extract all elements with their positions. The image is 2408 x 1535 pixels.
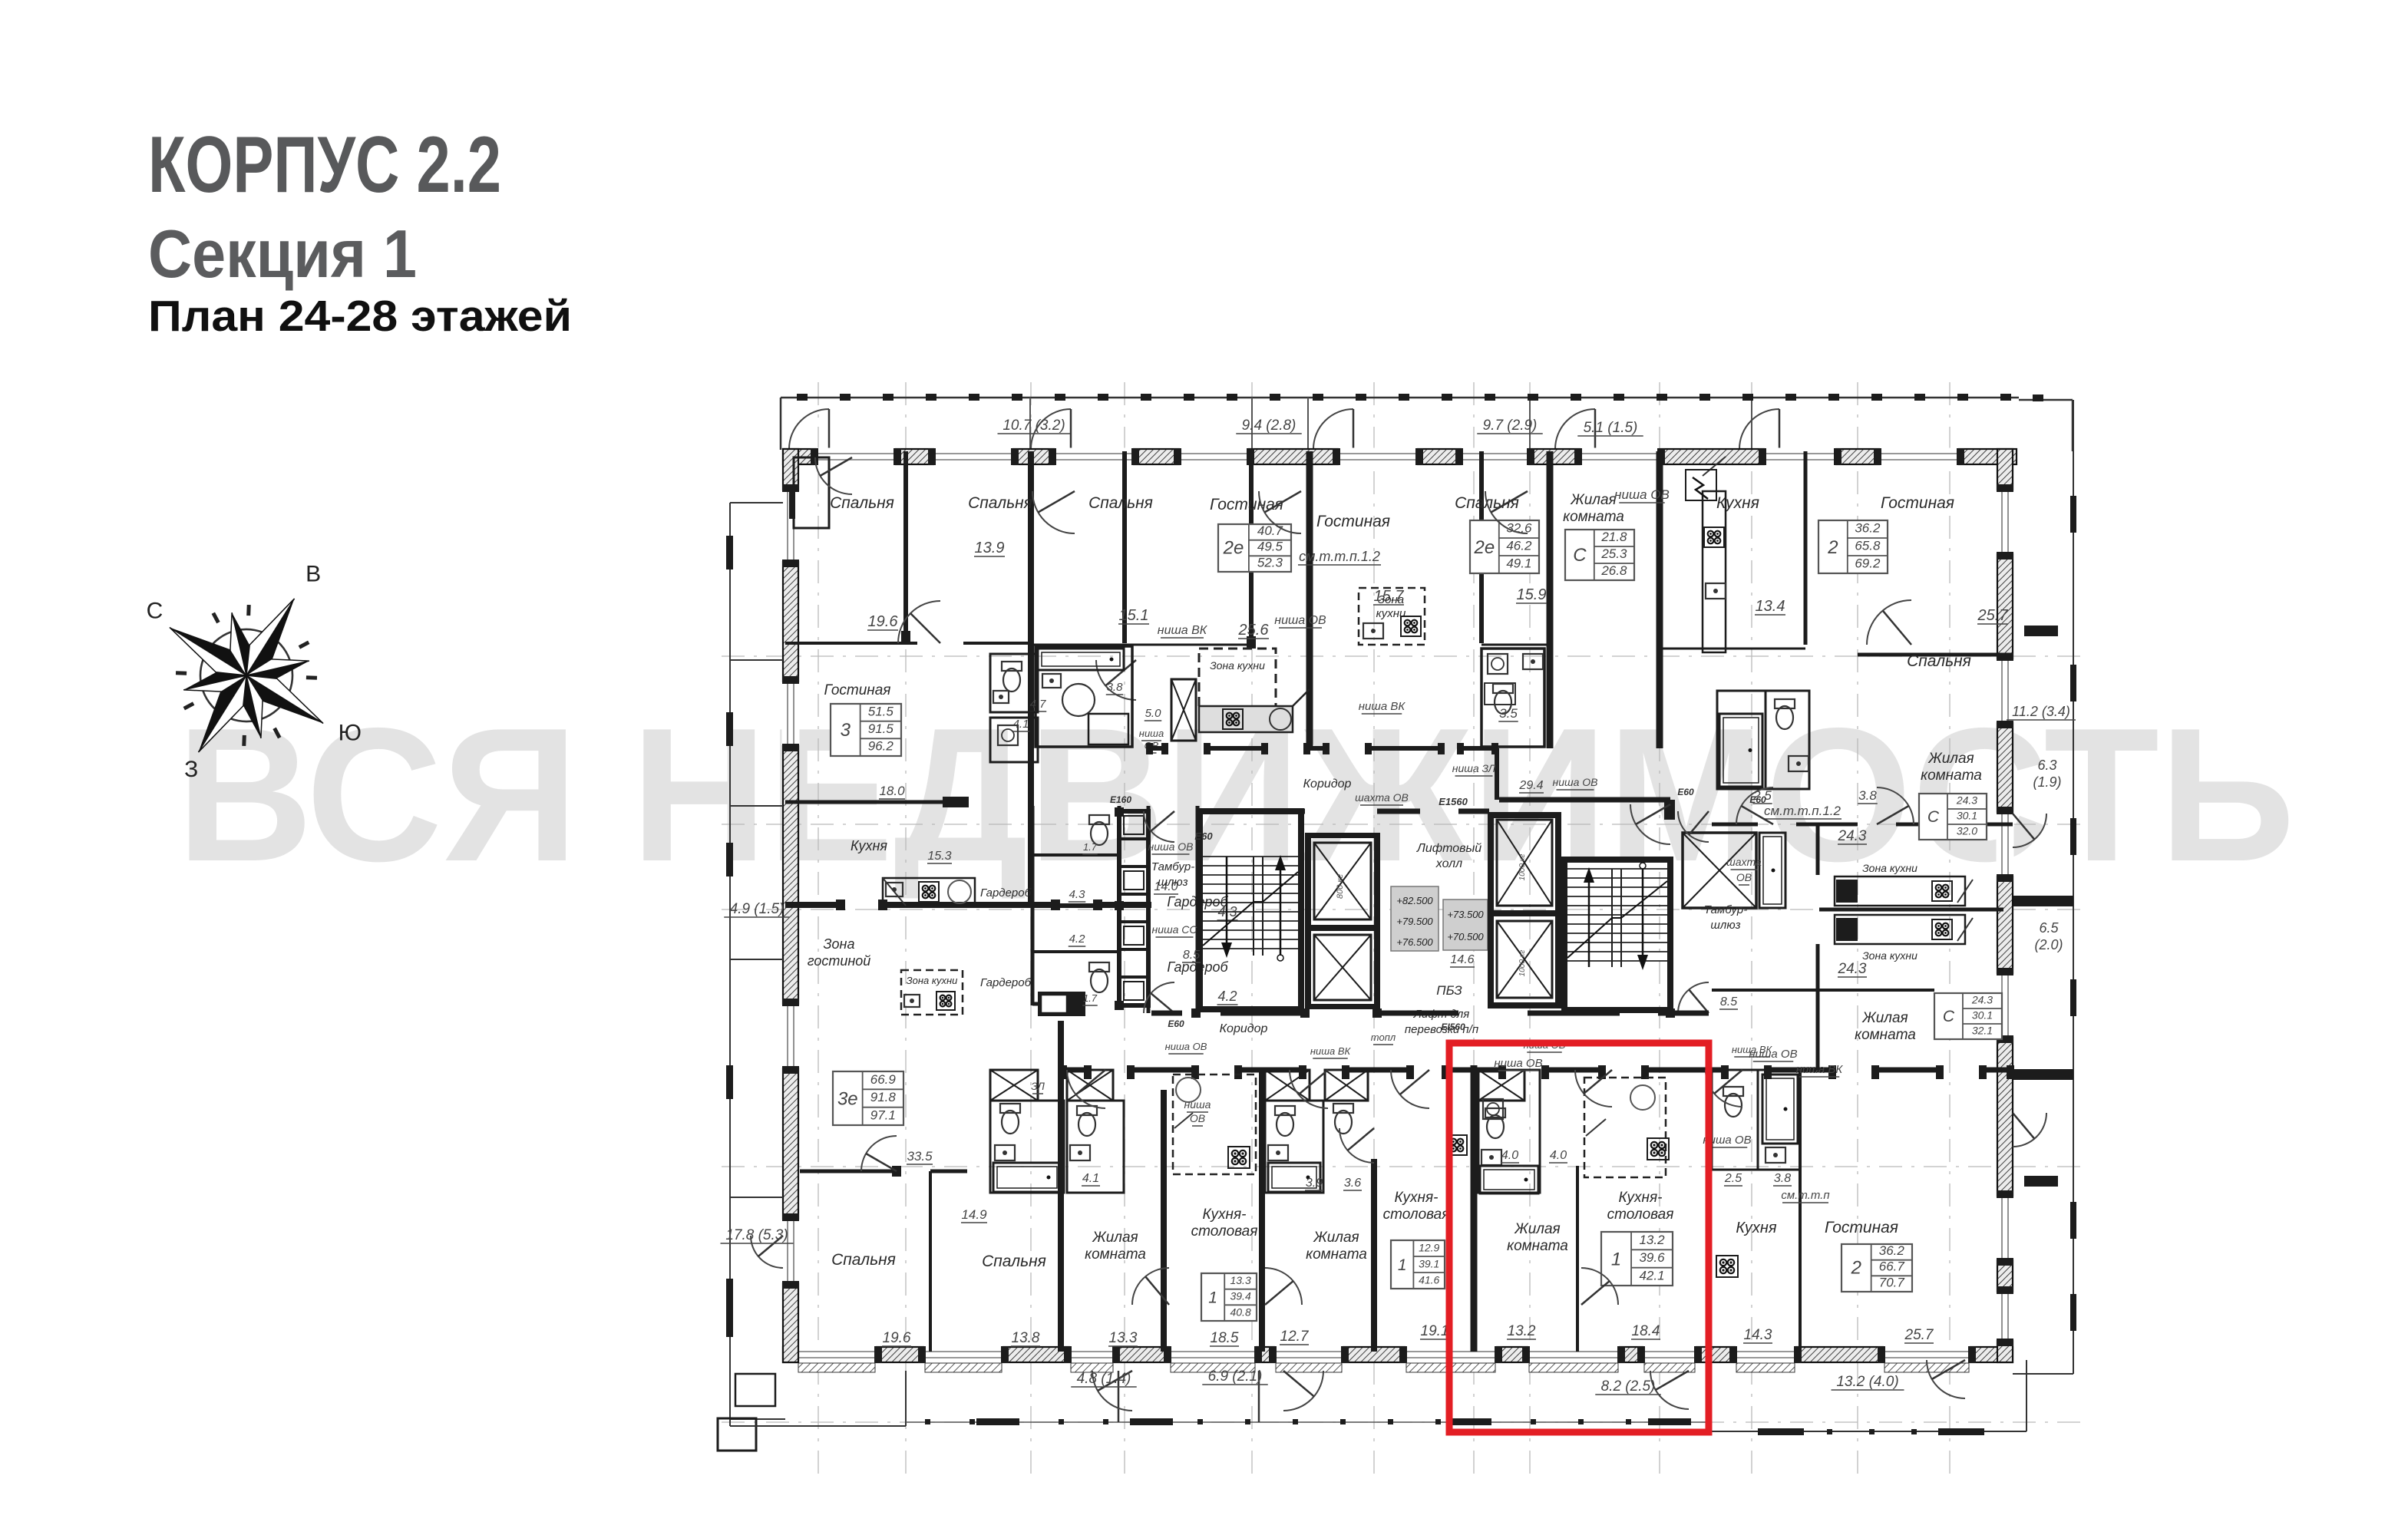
svg-text:51.5: 51.5: [868, 704, 894, 718]
svg-text:холл: холл: [1435, 857, 1462, 870]
svg-text:6.5: 6.5: [2039, 920, 2059, 936]
svg-text:9.4 (2.8): 9.4 (2.8): [1242, 418, 1296, 434]
svg-text:97.1: 97.1: [870, 1108, 896, 1123]
svg-text:6.3: 6.3: [2037, 758, 2056, 773]
svg-text:25.7: 25.7: [1904, 1327, 1934, 1343]
svg-text:3: 3: [841, 720, 851, 741]
svg-text:ниша ВК: ниша ВК: [1359, 700, 1406, 713]
svg-text:ниша ОВ: ниша ОВ: [1614, 487, 1670, 502]
svg-text:ниша ОВ: ниша ОВ: [1749, 1048, 1797, 1061]
svg-text:91.8: 91.8: [870, 1090, 897, 1104]
svg-text:4.2: 4.2: [1217, 989, 1237, 1004]
svg-text:21.8: 21.8: [1600, 530, 1627, 544]
svg-text:70.7: 70.7: [1879, 1275, 1905, 1289]
svg-text:Зона кухни: Зона кухни: [1862, 949, 1917, 962]
svg-text:Жилая: Жилая: [1092, 1230, 1138, 1246]
svg-text:Е60: Е60: [1194, 830, 1213, 842]
svg-text:5.0: 5.0: [1145, 707, 1162, 720]
svg-text:ниша: ниша: [1184, 1098, 1211, 1111]
svg-text:ниша ОВ: ниша ОВ: [1552, 776, 1597, 788]
svg-text:1000 кг: 1000 кг: [1518, 950, 1527, 977]
svg-text:План 24-28 этажей: План 24-28 этажей: [148, 292, 572, 341]
svg-text:Гостиная: Гостиная: [1825, 1219, 1898, 1236]
svg-text:столовая: столовая: [1607, 1207, 1674, 1223]
svg-text:топл: топл: [1371, 1032, 1396, 1043]
svg-text:С: С: [1573, 545, 1587, 566]
svg-text:4.1: 4.1: [1082, 1172, 1099, 1185]
svg-text:см.т.т.п.1.2: см.т.т.п.1.2: [1299, 549, 1380, 564]
svg-text:1.7: 1.7: [1083, 841, 1098, 853]
svg-text:ниша ВК: ниша ВК: [1310, 1045, 1352, 1057]
svg-text:4.2: 4.2: [1069, 933, 1086, 946]
svg-text:18.4: 18.4: [1632, 1323, 1660, 1339]
svg-text:Кухня: Кухня: [851, 838, 887, 853]
svg-text:Секция 1: Секция 1: [148, 216, 417, 292]
svg-text:Гостиная: Гостиная: [1881, 494, 1954, 512]
svg-text:4.1: 4.1: [1013, 718, 1029, 731]
svg-text:ОВ: ОВ: [1190, 1112, 1205, 1124]
svg-text:Спальня: Спальня: [982, 1253, 1046, 1270]
svg-text:6.9 (2.1): 6.9 (2.1): [1208, 1368, 1263, 1385]
svg-text:5.1 (1.5): 5.1 (1.5): [1584, 420, 1638, 436]
svg-text:4.8 (1.4): 4.8 (1.4): [1077, 1371, 1131, 1387]
svg-text:Коридор: Коридор: [1303, 777, 1352, 791]
svg-text:96.2: 96.2: [868, 739, 894, 754]
svg-text:Гардероб: Гардероб: [980, 886, 1032, 900]
svg-text:13.2: 13.2: [1508, 1323, 1536, 1339]
svg-text:29.4: 29.4: [1518, 779, 1543, 792]
svg-text:36.2: 36.2: [1879, 1243, 1905, 1258]
svg-text:13.3: 13.3: [1230, 1274, 1250, 1286]
svg-text:15.9: 15.9: [1517, 586, 1547, 603]
svg-text:52.3: 52.3: [1257, 555, 1283, 569]
svg-text:(2.0): (2.0): [2034, 937, 2063, 952]
svg-text:3.8: 3.8: [1774, 1172, 1791, 1185]
svg-text:13.2: 13.2: [1639, 1233, 1665, 1247]
svg-text:Кухня: Кухня: [1736, 1220, 1777, 1236]
svg-text:24.3: 24.3: [1838, 961, 1867, 977]
svg-text:столовая: столовая: [1191, 1223, 1258, 1240]
svg-text:24.3: 24.3: [1956, 794, 1977, 807]
svg-text:Спальня: Спальня: [831, 1251, 896, 1269]
svg-text:3.9: 3.9: [1306, 1177, 1323, 1190]
svg-text:65.8: 65.8: [1855, 539, 1881, 553]
svg-text:ОВ: ОВ: [1736, 871, 1752, 883]
svg-text:комната: комната: [1085, 1246, 1146, 1263]
svg-text:36.2: 36.2: [1855, 521, 1881, 536]
svg-text:ниша ОВ: ниша ОВ: [1165, 1041, 1207, 1052]
svg-text:КОРПУС 2.2: КОРПУС 2.2: [148, 120, 501, 210]
svg-text:2: 2: [1827, 537, 1838, 558]
svg-text:800 кг: 800 кг: [1336, 873, 1345, 899]
svg-text:+70.500: +70.500: [1447, 931, 1484, 942]
svg-text:66.7: 66.7: [1879, 1259, 1905, 1274]
svg-text:1.7: 1.7: [1083, 992, 1098, 1004]
svg-text:11.2 (3.4): 11.2 (3.4): [2012, 704, 2070, 719]
svg-text:40.7: 40.7: [1257, 523, 1283, 538]
svg-text:91.5: 91.5: [868, 721, 894, 736]
svg-text:ЗЛ: ЗЛ: [1031, 1080, 1045, 1092]
svg-text:8.5: 8.5: [1720, 995, 1737, 1008]
svg-text:ниша ЗЛ: ниша ЗЛ: [1452, 762, 1496, 774]
svg-text:С: С: [1943, 1008, 1955, 1025]
svg-text:26.8: 26.8: [1600, 563, 1627, 578]
svg-text:33.5: 33.5: [907, 1149, 933, 1164]
svg-text:24.3: 24.3: [1971, 994, 1993, 1006]
svg-text:Жилая: Жилая: [1570, 492, 1616, 508]
svg-text:ниша ВК: ниша ВК: [1158, 624, 1208, 637]
svg-text:шлюз: шлюз: [1158, 876, 1187, 889]
svg-text:Зона кухни: Зона кухни: [1862, 862, 1917, 874]
svg-text:12.7: 12.7: [1280, 1329, 1310, 1345]
svg-text:Коридор: Коридор: [1220, 1022, 1268, 1035]
svg-text:30.1: 30.1: [1957, 810, 1977, 822]
svg-text:19.6: 19.6: [868, 613, 899, 630]
svg-text:8.5: 8.5: [1183, 949, 1200, 962]
svg-text:39.1: 39.1: [1419, 1257, 1439, 1269]
svg-text:2е: 2е: [1223, 537, 1244, 558]
svg-text:+79.500: +79.500: [1396, 916, 1433, 927]
svg-text:+82.500: +82.500: [1396, 895, 1433, 906]
svg-text:13.2 (4.0): 13.2 (4.0): [1836, 1374, 1898, 1390]
svg-text:30.1: 30.1: [1972, 1009, 1993, 1022]
svg-text:2: 2: [1851, 1257, 1861, 1278]
svg-text:9.7 (2.9): 9.7 (2.9): [1483, 418, 1538, 434]
svg-text:18.0: 18.0: [879, 784, 905, 798]
svg-text:С: С: [1927, 808, 1940, 826]
svg-text:Жилая: Жилая: [1861, 1010, 1908, 1026]
svg-text:ниша: ниша: [1139, 728, 1164, 739]
svg-text:комната: комната: [1855, 1027, 1916, 1043]
svg-text:шахта: шахта: [1726, 856, 1762, 868]
svg-text:15.3: 15.3: [927, 850, 951, 863]
svg-text:3е: 3е: [837, 1088, 858, 1109]
svg-text:гостиной: гостиной: [808, 953, 871, 969]
svg-text:столовая: столовая: [1383, 1207, 1450, 1223]
svg-text:ниша ВК: ниша ВК: [1796, 1063, 1844, 1076]
svg-text:8.2 (2.5): 8.2 (2.5): [1601, 1378, 1656, 1395]
svg-text:см.т.т.п: см.т.т.п: [1781, 1189, 1829, 1202]
svg-text:ПБЗ: ПБЗ: [1436, 983, 1462, 998]
svg-text:Тамбур-: Тамбур-: [1704, 903, 1747, 916]
svg-text:ниша ОВ: ниша ОВ: [1274, 614, 1326, 627]
svg-text:2е: 2е: [1474, 537, 1495, 558]
svg-text:3.5: 3.5: [1499, 706, 1518, 721]
svg-text:Зона кухни: Зона кухни: [907, 975, 958, 986]
svg-text:12.9: 12.9: [1419, 1241, 1439, 1253]
svg-text:3.8: 3.8: [1858, 788, 1877, 803]
svg-text:3.8: 3.8: [1107, 681, 1124, 694]
svg-text:ниша СС: ниша СС: [1151, 923, 1197, 936]
svg-text:24.3: 24.3: [1838, 828, 1867, 844]
svg-text:Лифтовый: Лифтовый: [1416, 842, 1481, 855]
svg-text:4.0: 4.0: [1501, 1149, 1518, 1162]
svg-text:3.6: 3.6: [1344, 1177, 1361, 1190]
svg-text:Жилая: Жилая: [1514, 1221, 1560, 1237]
svg-text:1000 кг: 1000 кг: [1518, 854, 1527, 881]
svg-text:32.1: 32.1: [1972, 1025, 1993, 1037]
svg-text:Жилая: Жилая: [1927, 751, 1974, 767]
svg-text:25.3: 25.3: [1600, 546, 1627, 561]
svg-text:Е60: Е60: [1677, 787, 1694, 797]
svg-text:Е1560: Е1560: [1439, 796, 1468, 807]
svg-text:4.9 (1.5): 4.9 (1.5): [730, 901, 784, 917]
svg-text:Зона кухни: Зона кухни: [1210, 659, 1265, 672]
svg-text:15.1: 15.1: [1119, 607, 1149, 624]
svg-text:10.7 (3.2): 10.7 (3.2): [1003, 418, 1065, 434]
svg-text:Спальня: Спальня: [1088, 494, 1153, 512]
svg-text:комната: комната: [1563, 509, 1624, 525]
svg-text:19.6: 19.6: [883, 1330, 911, 1346]
svg-text:13.8: 13.8: [1012, 1330, 1040, 1346]
svg-text:14.9: 14.9: [961, 1207, 987, 1222]
svg-text:Спальня: Спальня: [968, 494, 1032, 512]
svg-text:25.7: 25.7: [1977, 607, 2009, 624]
svg-text:66.9: 66.9: [870, 1072, 897, 1087]
svg-text:2.5: 2.5: [1724, 1172, 1742, 1185]
svg-text:4.3: 4.3: [1069, 888, 1086, 901]
svg-text:комната: комната: [1306, 1246, 1367, 1263]
svg-text:Гостиная: Гостиная: [1316, 513, 1390, 530]
svg-text:13.9: 13.9: [975, 540, 1005, 556]
svg-text:1: 1: [1611, 1249, 1621, 1269]
svg-text:С: С: [147, 598, 164, 623]
svg-text:19.1: 19.1: [1421, 1323, 1449, 1339]
svg-text:Зона: Зона: [1378, 593, 1404, 606]
svg-text:14.3: 14.3: [1744, 1327, 1772, 1343]
svg-text:46.2: 46.2: [1506, 539, 1532, 553]
svg-text:42.1: 42.1: [1639, 1269, 1664, 1283]
svg-text:17.8 (5.3): 17.8 (5.3): [725, 1227, 788, 1243]
svg-text:(1.9): (1.9): [2033, 774, 2061, 790]
svg-text:+73.500: +73.500: [1447, 909, 1484, 920]
svg-text:39.4: 39.4: [1230, 1290, 1250, 1302]
svg-text:Кухня-: Кухня-: [1395, 1190, 1439, 1206]
svg-text:Е60: Е60: [1168, 1018, 1184, 1029]
svg-text:41.6: 41.6: [1419, 1273, 1439, 1286]
svg-text:Спальня: Спальня: [1907, 652, 1971, 670]
svg-text:14.6: 14.6: [1450, 953, 1474, 966]
svg-text:1: 1: [1208, 1289, 1217, 1306]
svg-text:13.3: 13.3: [1109, 1330, 1138, 1346]
svg-text:кухни: кухни: [1376, 607, 1406, 620]
svg-text:Кухня: Кухня: [1716, 494, 1759, 512]
svg-text:25.6: 25.6: [1238, 622, 1270, 639]
svg-text:шлюз: шлюз: [1710, 919, 1740, 932]
svg-text:см.т.т.п.1.2: см.т.т.п.1.2: [1764, 804, 1842, 818]
svg-text:шахта ОВ: шахта ОВ: [1355, 791, 1409, 804]
svg-text:Зона: Зона: [824, 936, 855, 952]
svg-text:4.0: 4.0: [1550, 1149, 1567, 1162]
svg-text:69.2: 69.2: [1855, 556, 1881, 571]
svg-text:Жилая: Жилая: [1313, 1230, 1359, 1246]
svg-text:Е160: Е160: [1110, 794, 1131, 805]
svg-text:ниша ОВ: ниша ОВ: [1494, 1057, 1542, 1070]
svg-text:Спальня: Спальня: [830, 494, 894, 512]
svg-text:49.1: 49.1: [1506, 556, 1531, 571]
svg-text:Гардероб: Гардероб: [980, 976, 1032, 989]
svg-text:комната: комната: [1507, 1238, 1568, 1254]
svg-text:+76.500: +76.500: [1396, 936, 1433, 948]
svg-text:1: 1: [1398, 1256, 1407, 1274]
svg-text:Тамбур-: Тамбур-: [1151, 860, 1194, 873]
svg-text:Ю: Ю: [339, 720, 362, 745]
svg-text:32.0: 32.0: [1957, 825, 1977, 837]
svg-text:13.4: 13.4: [1756, 598, 1785, 615]
svg-text:Е60: Е60: [1749, 794, 1766, 805]
svg-text:Кухня-: Кухня-: [1203, 1207, 1247, 1223]
svg-text:49.5: 49.5: [1257, 540, 1283, 554]
svg-text:комната: комната: [1921, 767, 1982, 784]
svg-text:Гостиная: Гостиная: [824, 682, 891, 698]
svg-text:В: В: [306, 562, 321, 587]
svg-text:39.6: 39.6: [1639, 1250, 1665, 1265]
svg-text:З: З: [184, 757, 198, 782]
svg-text:Гостиная: Гостиная: [1210, 496, 1283, 513]
svg-text:Кухня-: Кухня-: [1619, 1190, 1663, 1206]
svg-text:40.8: 40.8: [1230, 1306, 1250, 1318]
svg-text:ЕІ560: ЕІ560: [1441, 1022, 1465, 1032]
svg-text:18.5: 18.5: [1211, 1330, 1239, 1346]
